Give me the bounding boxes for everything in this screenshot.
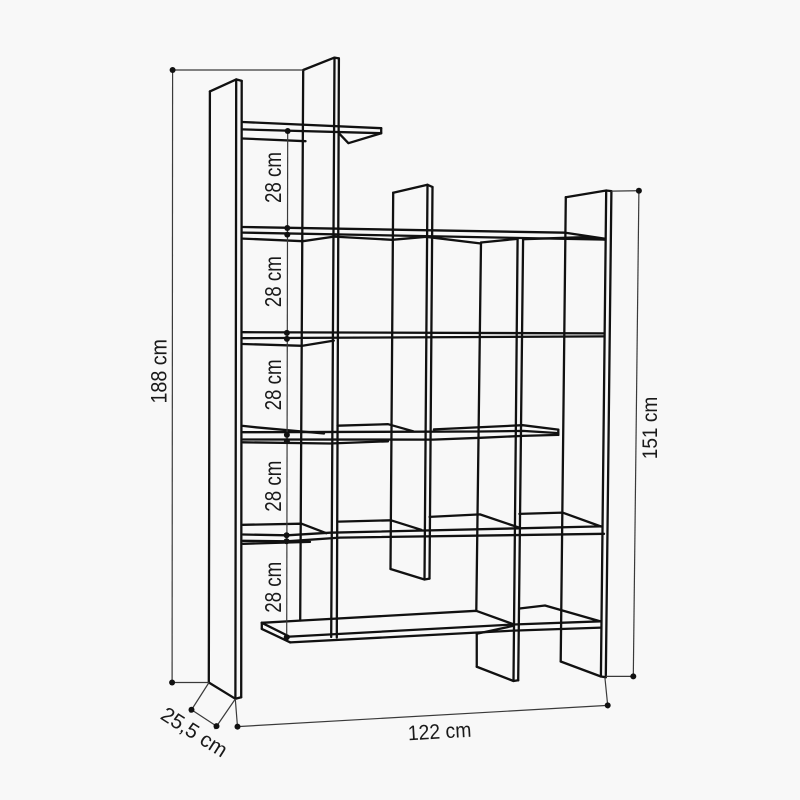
- svg-text:28 cm: 28 cm: [260, 152, 286, 203]
- svg-text:28 cm: 28 cm: [260, 256, 286, 307]
- svg-text:28 cm: 28 cm: [260, 461, 286, 512]
- svg-text:122 cm: 122 cm: [407, 719, 472, 746]
- svg-text:28 cm: 28 cm: [260, 562, 286, 613]
- svg-text:188 cm: 188 cm: [147, 339, 172, 404]
- svg-text:28 cm: 28 cm: [260, 359, 286, 410]
- svg-text:151 cm: 151 cm: [638, 397, 662, 460]
